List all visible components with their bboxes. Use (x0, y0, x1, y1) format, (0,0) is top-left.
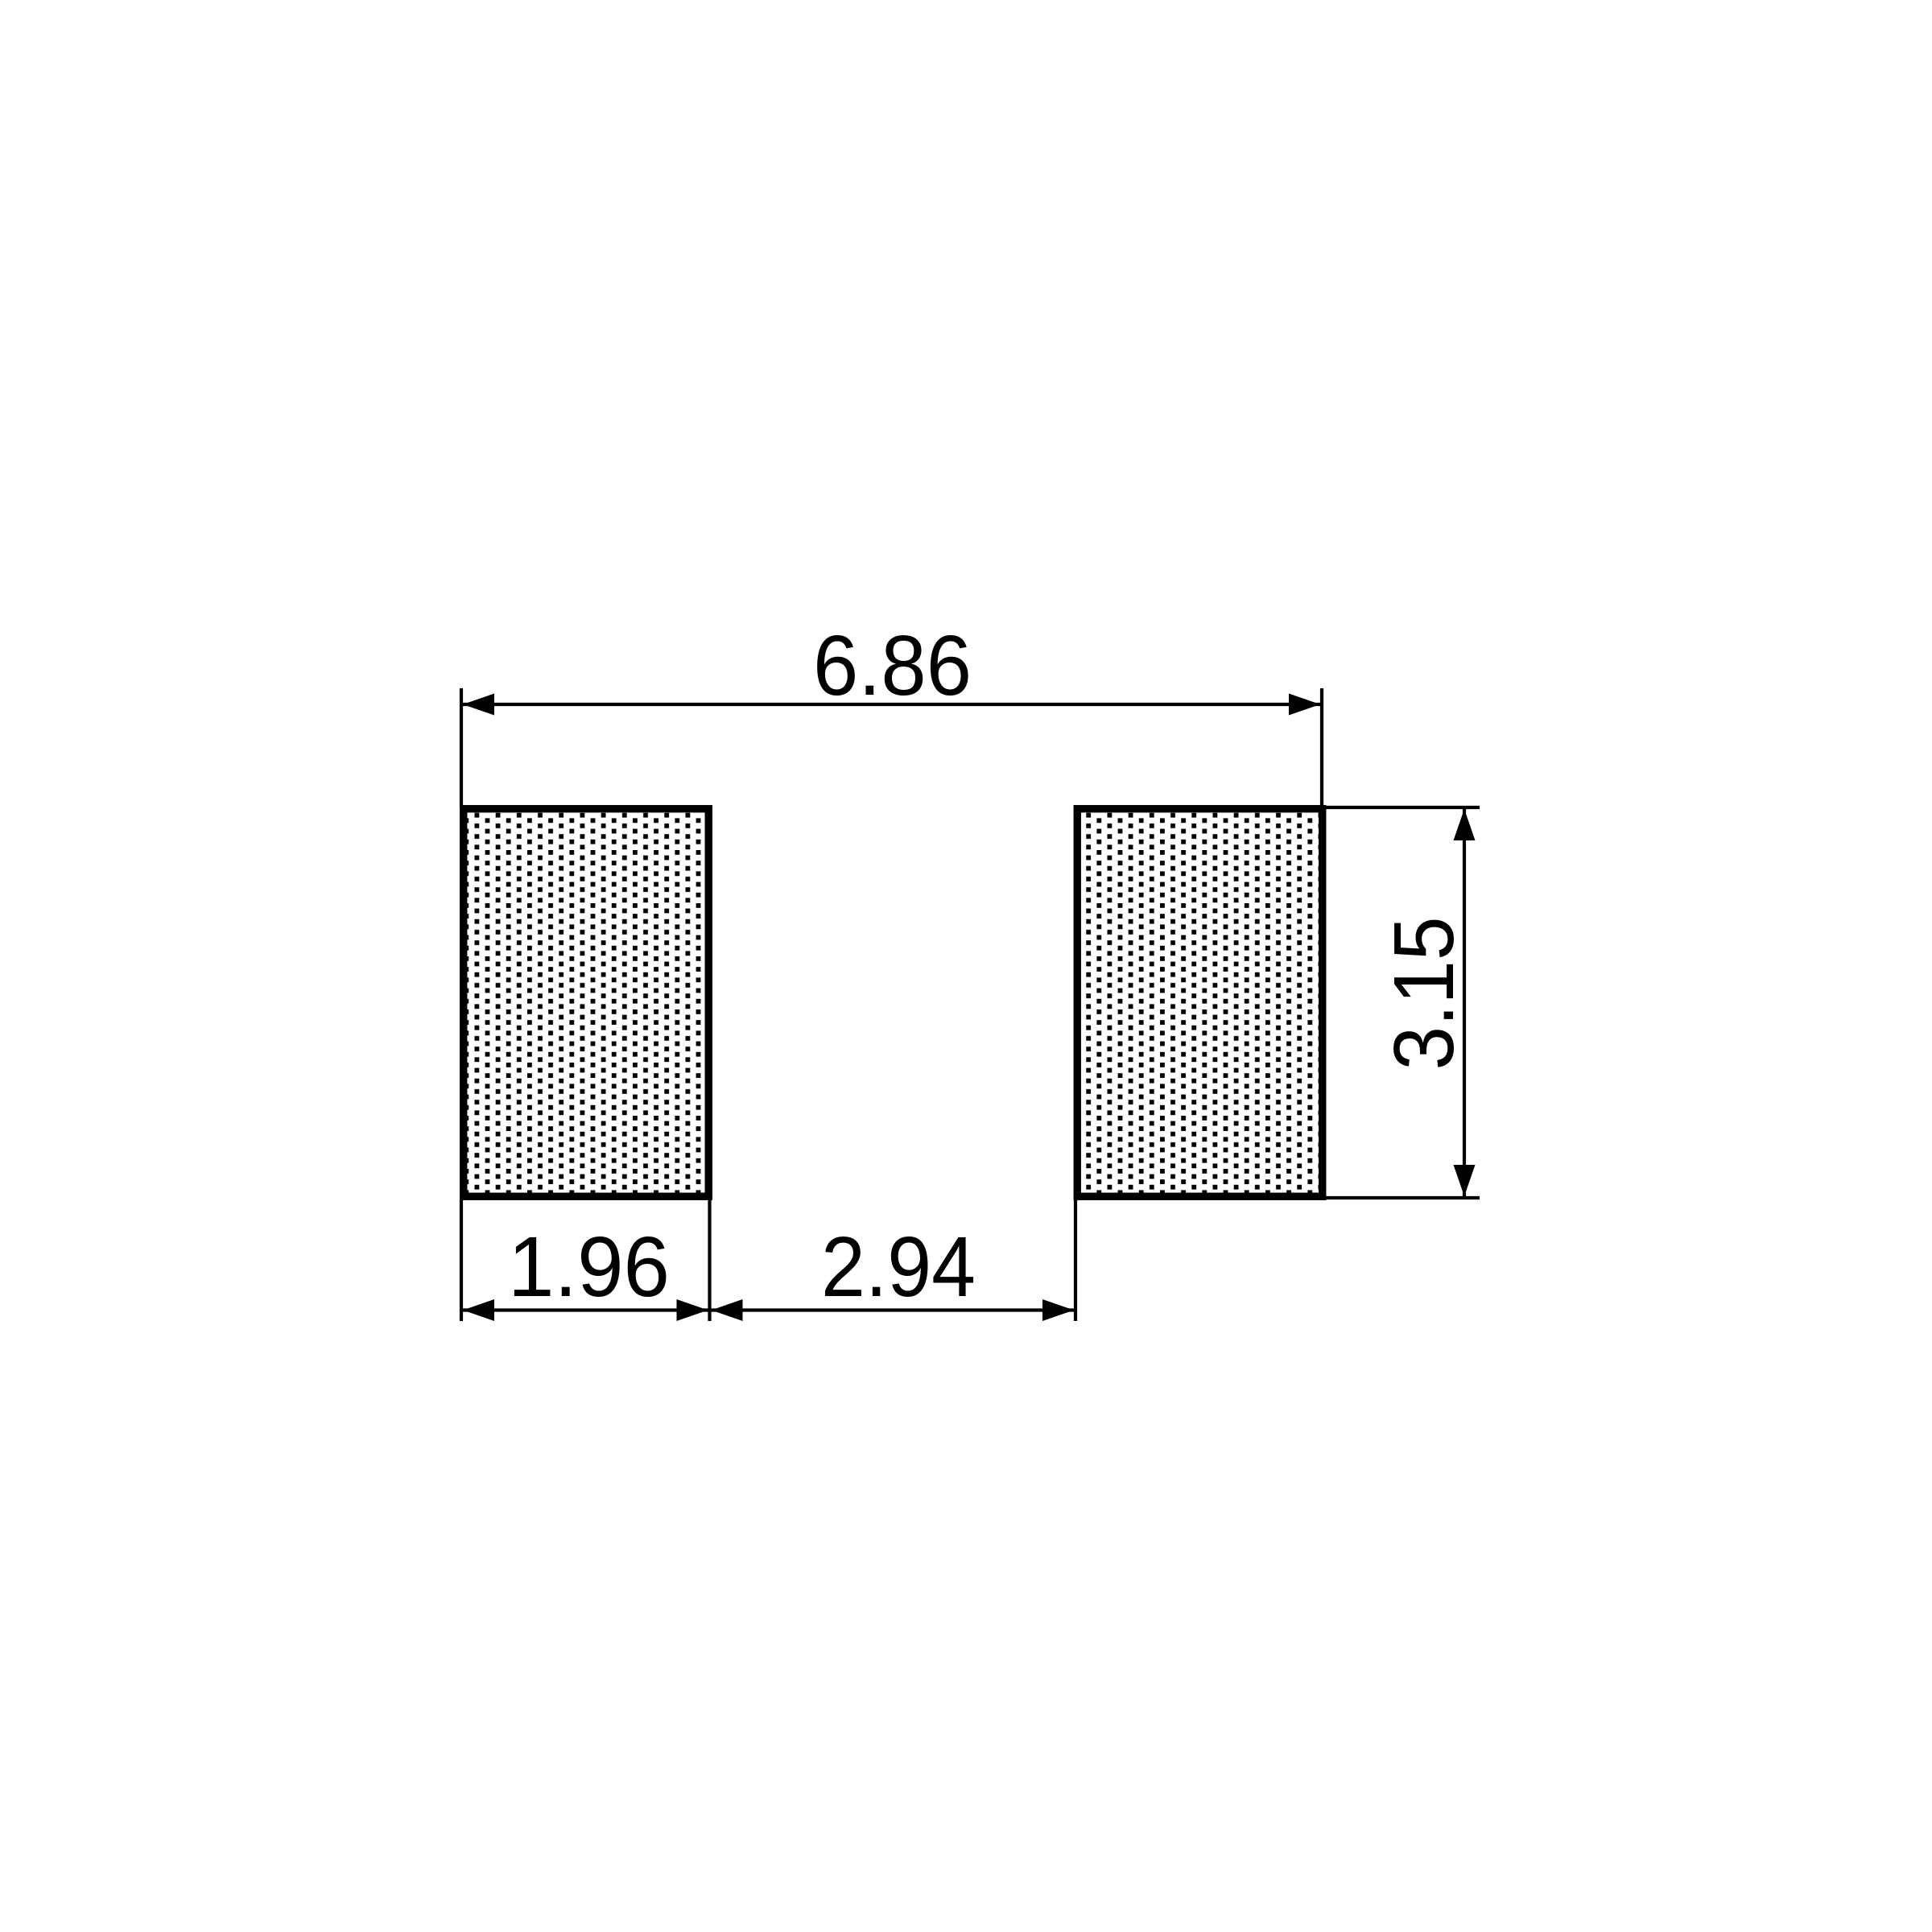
svg-text:1.96: 1.96 (508, 1220, 670, 1315)
svg-text:6.86: 6.86 (813, 618, 972, 713)
svg-text:2.94: 2.94 (821, 1220, 976, 1315)
svg-text:3.15: 3.15 (1377, 917, 1472, 1071)
